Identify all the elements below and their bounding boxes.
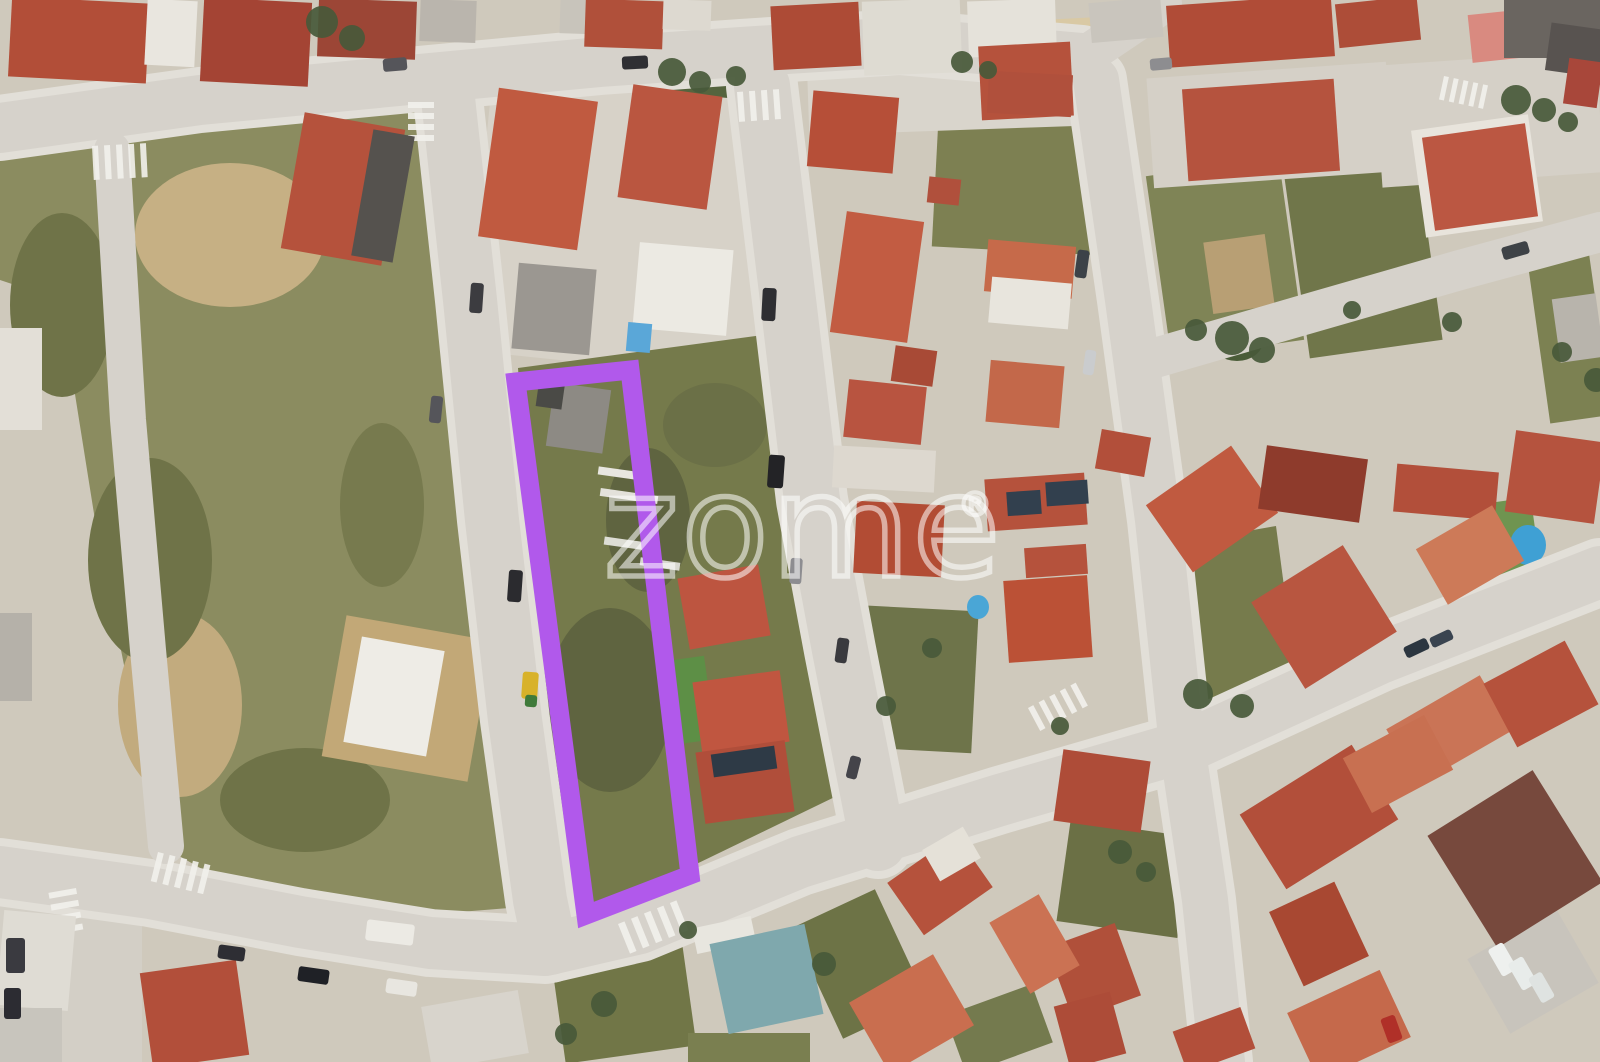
building bbox=[891, 345, 938, 386]
tree bbox=[1185, 319, 1207, 341]
tree bbox=[591, 991, 617, 1017]
building bbox=[1335, 0, 1421, 48]
car bbox=[761, 288, 777, 322]
building bbox=[662, 0, 711, 31]
tree bbox=[876, 696, 896, 716]
car bbox=[469, 283, 484, 314]
building bbox=[1053, 749, 1150, 833]
building bbox=[1505, 430, 1600, 524]
tree bbox=[1552, 342, 1572, 362]
car bbox=[507, 570, 523, 603]
building bbox=[862, 0, 963, 76]
building bbox=[987, 71, 1073, 117]
building bbox=[1095, 429, 1151, 477]
satellite-map: zome ® bbox=[0, 0, 1600, 1062]
building bbox=[985, 360, 1064, 428]
building bbox=[0, 328, 42, 430]
property-aerial-photo: zome ® bbox=[0, 0, 1600, 1062]
building bbox=[8, 0, 150, 84]
tree bbox=[1442, 312, 1462, 332]
building bbox=[1166, 0, 1335, 68]
building bbox=[0, 613, 32, 701]
tree bbox=[1183, 679, 1213, 709]
building bbox=[770, 2, 861, 71]
building bbox=[478, 88, 598, 250]
vegetation-patch bbox=[688, 1033, 810, 1062]
building bbox=[843, 379, 927, 445]
tree bbox=[922, 638, 942, 658]
car bbox=[6, 938, 25, 973]
building bbox=[144, 0, 197, 67]
building bbox=[1088, 0, 1163, 43]
building bbox=[1045, 480, 1089, 507]
building bbox=[511, 263, 596, 355]
building bbox=[807, 90, 899, 173]
building bbox=[1182, 79, 1340, 181]
car bbox=[1150, 57, 1173, 71]
building bbox=[1563, 58, 1600, 108]
tree bbox=[679, 921, 697, 939]
crosswalk-stripe bbox=[408, 124, 434, 130]
tree bbox=[1343, 301, 1361, 319]
tree bbox=[555, 1023, 577, 1045]
building bbox=[927, 176, 962, 205]
building bbox=[1024, 544, 1088, 578]
tree bbox=[1230, 694, 1254, 718]
tree bbox=[1501, 85, 1531, 115]
building bbox=[200, 0, 312, 87]
crosswalk-stripe bbox=[408, 113, 434, 119]
watermark-registered-icon: ® bbox=[958, 485, 992, 525]
tree bbox=[339, 25, 365, 51]
car bbox=[525, 695, 538, 708]
car bbox=[622, 55, 649, 69]
building bbox=[988, 277, 1072, 330]
tree bbox=[1215, 321, 1249, 355]
car bbox=[4, 988, 21, 1019]
tree bbox=[1558, 112, 1578, 132]
tree bbox=[726, 66, 746, 86]
tree bbox=[306, 6, 338, 38]
watermark-text: zome bbox=[604, 445, 1003, 610]
tree bbox=[1108, 840, 1132, 864]
building bbox=[692, 670, 789, 754]
tree bbox=[1532, 98, 1556, 122]
tree bbox=[951, 51, 973, 73]
tree bbox=[979, 61, 997, 79]
building bbox=[1422, 123, 1538, 231]
crosswalk-stripe bbox=[408, 102, 434, 108]
tree bbox=[689, 71, 711, 93]
building bbox=[1003, 575, 1093, 663]
car bbox=[382, 57, 407, 72]
building bbox=[618, 84, 723, 209]
tree bbox=[1136, 862, 1156, 882]
building bbox=[584, 0, 664, 49]
tree bbox=[1051, 717, 1069, 735]
building bbox=[632, 242, 733, 336]
building bbox=[419, 0, 476, 43]
vegetation-patch bbox=[1203, 234, 1274, 314]
building bbox=[1006, 490, 1042, 516]
tree bbox=[1249, 337, 1275, 363]
building bbox=[626, 322, 652, 353]
vegetation-patch bbox=[340, 423, 424, 587]
tree bbox=[658, 58, 686, 86]
building bbox=[140, 960, 249, 1062]
watermark: zome ® bbox=[604, 445, 1003, 610]
tree bbox=[812, 952, 836, 976]
